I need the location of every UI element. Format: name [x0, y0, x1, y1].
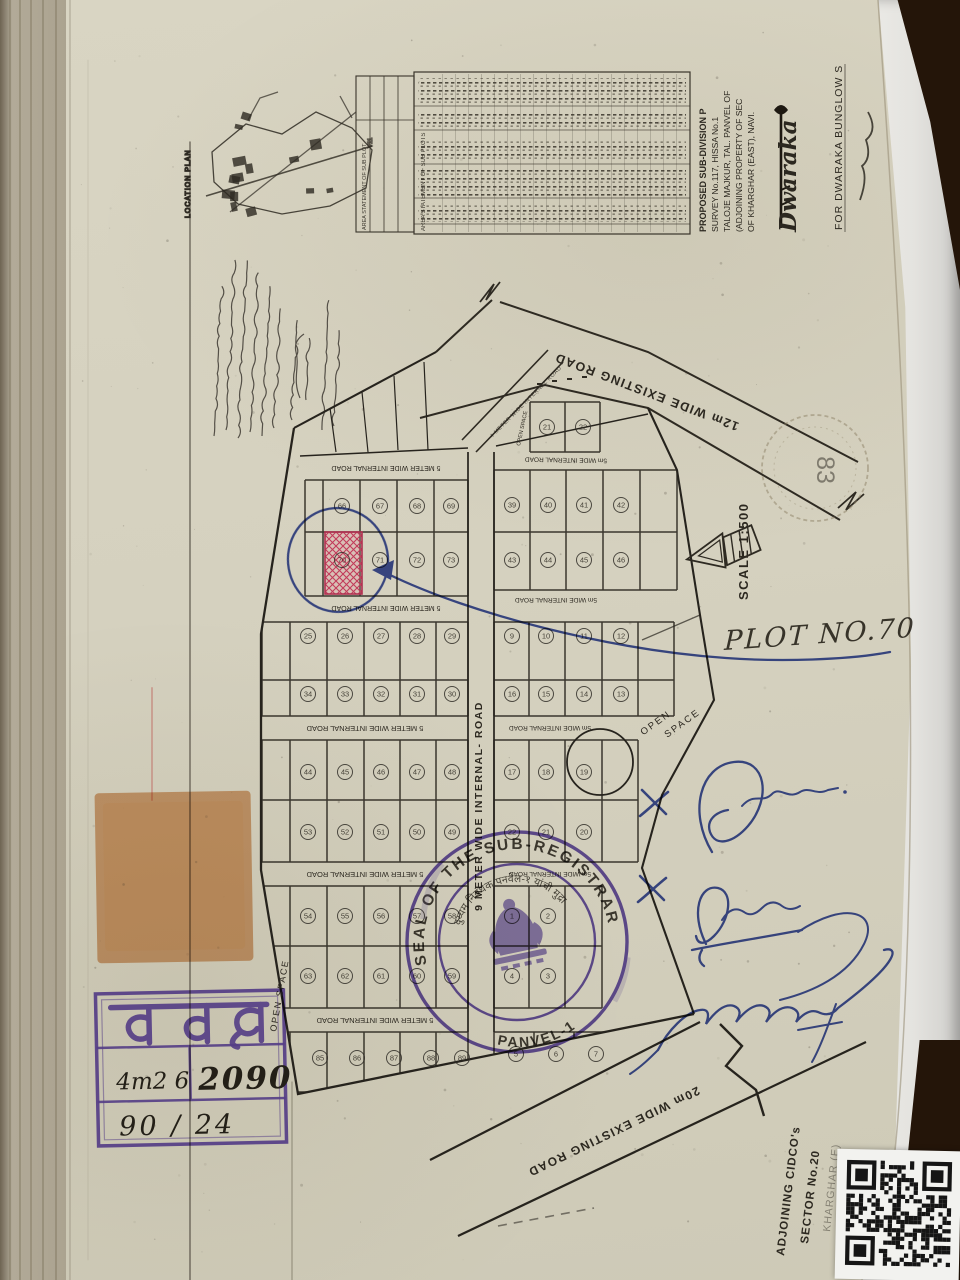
svg-text:SECTOR No.20: SECTOR No.20	[799, 1149, 822, 1244]
plot-number: 21	[540, 420, 555, 435]
plot-number: 30	[445, 687, 460, 702]
svg-text:21: 21	[543, 423, 551, 432]
plot-number: 47	[410, 765, 425, 780]
svg-text:52: 52	[341, 828, 349, 837]
svg-text:16: 16	[508, 690, 516, 699]
svg-text:70: 70	[338, 556, 346, 565]
plot-number: 33	[338, 687, 353, 702]
plot-number: 49	[445, 825, 460, 840]
plot-number: 44	[301, 765, 316, 780]
plot-number: 61	[374, 969, 389, 984]
svg-text:7: 7	[594, 1050, 598, 1059]
plot-number: 31	[410, 687, 425, 702]
svg-text:44: 44	[304, 768, 312, 777]
svg-text:18: 18	[542, 768, 550, 777]
for-line: FOR DWARAKA BUNGLOW S	[833, 65, 845, 230]
plot-number: 46	[614, 553, 629, 568]
svg-text:5m WIDE INTERNAL ROAD: 5m WIDE INTERNAL ROAD	[525, 455, 608, 463]
x-mark-1	[640, 790, 668, 816]
svg-text:OF KHARGHAR (EAST), NAVI.: OF KHARGHAR (EAST), NAVI.	[746, 112, 756, 232]
svg-text:69: 69	[447, 502, 455, 511]
svg-text:5m WIDE INTERNAL ROAD: 5m WIDE INTERNAL ROAD	[509, 724, 591, 731]
svg-text:3: 3	[546, 972, 550, 981]
svg-text:19: 19	[580, 768, 588, 777]
svg-text:46: 46	[617, 556, 625, 565]
dwaraka-logo: Dwaraka	[774, 105, 802, 233]
cul-de-sac	[567, 729, 633, 795]
svg-text:30: 30	[448, 690, 456, 699]
plot-number: 2	[541, 909, 556, 924]
plot-number: 13	[614, 687, 629, 702]
plot-number: 29	[445, 629, 460, 644]
plot-layout-map: 12m WIDE EXISTING ROAD 4 METER WIDE INTE…	[261, 282, 868, 1256]
stamp-year-handwritten: 2090	[197, 1060, 293, 1098]
area-statement-label: AREA STATEMENT OF SUB PLOT	[362, 143, 368, 230]
orange-patch	[95, 791, 254, 964]
plot-number: 68	[410, 499, 425, 514]
plot-number: 25	[301, 629, 316, 644]
plot-number: 73	[444, 553, 459, 568]
svg-text:26: 26	[341, 632, 349, 641]
svg-text:31: 31	[413, 690, 421, 699]
plot-number: 44	[541, 553, 556, 568]
svg-text:63: 63	[304, 972, 312, 981]
svg-text:6: 6	[554, 1050, 558, 1059]
svg-text:48: 48	[448, 768, 456, 777]
svg-text:86: 86	[353, 1054, 361, 1063]
plot-number: 85	[313, 1051, 328, 1066]
svg-text:ADJOINING CIDCO's: ADJOINING CIDCO's	[775, 1126, 803, 1257]
ashoka-emblem-icon	[481, 893, 548, 972]
plot-number: 52	[338, 825, 353, 840]
svg-text:27: 27	[377, 632, 385, 641]
svg-text:22: 22	[579, 423, 587, 432]
plot-number: 56	[374, 909, 389, 924]
plot-number: 55	[338, 909, 353, 924]
svg-text:62: 62	[341, 972, 349, 981]
svg-text:67: 67	[376, 502, 384, 511]
svg-text:72: 72	[413, 556, 421, 565]
area-statement-table-large: AREA STATEMENT OF SUB PLOTS	[414, 72, 690, 234]
open-space-labels: OPEN SPACE OPEN SPACE OPEN SPACE	[268, 410, 702, 1032]
location-plan-inset: LOCATION PLAN V11	[185, 92, 374, 218]
svg-text:5 METER WIDE INTERNAL ROAD: 5 METER WIDE INTERNAL ROAD	[306, 870, 423, 879]
plot-number: 53	[301, 825, 316, 840]
plot-number: 20	[577, 825, 592, 840]
svg-text:29: 29	[448, 632, 456, 641]
svg-text:40: 40	[544, 501, 552, 510]
plot-number: 72	[410, 553, 425, 568]
area-statement-label2: AREA STATEMENT OF SUB PLOTS	[421, 133, 427, 231]
svg-text:43: 43	[508, 556, 516, 565]
stamp-ref-handwritten: 4m2 6	[115, 1068, 190, 1096]
plot-number: 67	[373, 499, 388, 514]
svg-text:73: 73	[447, 556, 455, 565]
svg-text:Dwaraka: Dwaraka	[775, 119, 802, 233]
plot-number: 32	[374, 687, 389, 702]
plot-number: 9	[505, 629, 520, 644]
svg-text:39: 39	[508, 501, 516, 510]
plot-number: 45	[577, 553, 592, 568]
svg-text:55: 55	[341, 912, 349, 921]
plot-number: 69	[444, 499, 459, 514]
svg-text:85: 85	[316, 1054, 324, 1063]
plot-number: 50	[410, 825, 425, 840]
plot-number: 3	[541, 969, 556, 984]
road-12m-label: 12m WIDE EXISTING ROAD	[552, 350, 740, 433]
plot-number: 15	[539, 687, 554, 702]
svg-text:47: 47	[413, 768, 421, 777]
svg-text:13: 13	[617, 690, 625, 699]
plot-no-70-note: PLOT NO.70	[723, 613, 916, 658]
left-strip-lines	[10, 0, 56, 1280]
plot-number: 17	[505, 765, 520, 780]
plot-number: 40	[541, 498, 556, 513]
svg-text:20: 20	[580, 828, 588, 837]
svg-text:2: 2	[546, 912, 550, 921]
plot-number: 4	[505, 969, 520, 984]
svg-text:5 METER WIDE INTERNAL ROAD: 5 METER WIDE INTERNAL ROAD	[316, 1016, 433, 1025]
plot-number: 28	[410, 629, 425, 644]
plot-number: 42	[614, 498, 629, 513]
svg-text:12: 12	[617, 632, 625, 641]
svg-text:89: 89	[458, 1054, 466, 1063]
road-9m-label: 9 METER WIDE INTERNAL- ROAD	[473, 701, 485, 911]
document-drawing: LOCATION PLAN V11 AREA STATEMENT OF SUB …	[0, 0, 960, 1280]
pen-annotations: PLOT NO.70	[280, 500, 917, 1074]
plot-number: 66	[335, 499, 350, 514]
plot-number: 16	[505, 687, 520, 702]
svg-text:50: 50	[413, 828, 421, 837]
sub-registrar-seal: SEAL OF THE SUB-REGISTRAR PANVEL-1 दुय्य…	[387, 812, 648, 1073]
svg-text:OPEN SPACE: OPEN SPACE	[516, 410, 529, 446]
svg-text:TALOJE MAJKUR, TAL. PANVEL OF: TALOJE MAJKUR, TAL. PANVEL OF	[722, 91, 732, 232]
svg-text:14: 14	[580, 690, 588, 699]
svg-text:9: 9	[510, 632, 514, 641]
svg-text:61: 61	[377, 972, 385, 981]
svg-text:17: 17	[508, 768, 516, 777]
svg-text:41: 41	[580, 501, 588, 510]
vendor-signature-mark	[860, 112, 873, 200]
handwritten-notes	[212, 260, 341, 438]
svg-text:32: 32	[377, 690, 385, 699]
plot-number: 12	[614, 629, 629, 644]
svg-text:87: 87	[390, 1054, 398, 1063]
svg-text:54: 54	[304, 912, 312, 921]
svg-text:49: 49	[448, 828, 456, 837]
svg-text:46: 46	[377, 768, 385, 777]
svg-text:88: 88	[427, 1054, 435, 1063]
svg-text:PROPOSED SUB-DIVISION P: PROPOSED SUB-DIVISION P	[698, 108, 708, 232]
plot-number: 27	[374, 629, 389, 644]
svg-text:5 METER WIDE INTERNAL ROAD: 5 METER WIDE INTERNAL ROAD	[331, 464, 440, 471]
title-block: PROPOSED SUB-DIVISION P SURVEY No.117, H…	[698, 64, 873, 233]
svg-text:25: 25	[304, 632, 312, 641]
signature-1	[699, 762, 846, 852]
plot-number: 7	[589, 1047, 604, 1062]
plot-number: 48	[445, 765, 460, 780]
svg-text:28: 28	[413, 632, 421, 641]
svg-text:(ADJOINING PROPERTY OF SEC: (ADJOINING PROPERTY OF SEC	[734, 99, 744, 232]
plot-number: 39	[505, 498, 520, 513]
svg-text:56: 56	[377, 912, 385, 921]
svg-text:34: 34	[304, 690, 312, 699]
svg-text:OPEN SPACE: OPEN SPACE	[268, 959, 290, 1032]
plot-number: 63	[301, 969, 316, 984]
qr-code	[835, 1149, 960, 1280]
svg-text:5 METER WIDE INTERNAL ROAD: 5 METER WIDE INTERNAL ROAD	[306, 724, 423, 733]
svg-text:5m WIDE INTERNAL ROAD: 5m WIDE INTERNAL ROAD	[515, 596, 597, 603]
adjoining-cidco-note: ADJOINING CIDCO's SECTOR No.20 KHARGHAR …	[775, 1126, 842, 1257]
svg-text:45: 45	[580, 556, 588, 565]
svg-text:68: 68	[413, 502, 421, 511]
plot-number: 26	[338, 629, 353, 644]
stamp-title-devanagari-paval	[111, 1004, 268, 1049]
svg-text:83: 83	[811, 456, 839, 484]
plot-number: 54	[301, 909, 316, 924]
plot-number: 18	[539, 765, 554, 780]
plot-number: 62	[338, 969, 353, 984]
scanned-document-photo: LOCATION PLAN V11 AREA STATEMENT OF SUB …	[0, 0, 960, 1280]
svg-text:SURVEY No.117, HISSA No.1: SURVEY No.117, HISSA No.1	[710, 117, 720, 232]
svg-text:42: 42	[617, 501, 625, 510]
plot-number: 51	[374, 825, 389, 840]
road-12m-existing	[420, 282, 864, 520]
plot-number: 86	[350, 1051, 365, 1066]
plot-number: 14	[577, 687, 592, 702]
area-statement-table-small: AREA STATEMENT OF SUB PLOT	[356, 76, 414, 232]
stamp-serial-handwritten: 90 / 24	[119, 1109, 236, 1142]
svg-text:V11: V11	[368, 137, 374, 148]
scale-label: SCALE 1:500	[736, 503, 751, 600]
svg-text:44: 44	[544, 556, 552, 565]
svg-text:10: 10	[542, 632, 550, 641]
plot-number: 43	[505, 553, 520, 568]
plot-number: 46	[374, 765, 389, 780]
svg-text:15: 15	[542, 690, 550, 699]
signature-3	[630, 949, 893, 1074]
plot-number: 19	[577, 765, 592, 780]
plot-number: 6	[549, 1047, 564, 1062]
svg-text:4: 4	[510, 972, 514, 981]
svg-text:33: 33	[341, 690, 349, 699]
plot-number: 45	[338, 765, 353, 780]
plot-number: 41	[577, 498, 592, 513]
svg-text:51: 51	[377, 828, 385, 837]
svg-text:45: 45	[341, 768, 349, 777]
location-plan-label: LOCATION PLAN	[185, 150, 192, 219]
registration-stamp-box: 4m2 6 2090 90 / 24	[95, 990, 293, 1146]
qr-code-card	[835, 1149, 960, 1280]
plot-numbers: 6667686970717273212239404142434445462526…	[301, 420, 629, 1066]
svg-text:53: 53	[304, 828, 312, 837]
svg-text:71: 71	[376, 556, 384, 565]
signature-2	[692, 888, 868, 1000]
